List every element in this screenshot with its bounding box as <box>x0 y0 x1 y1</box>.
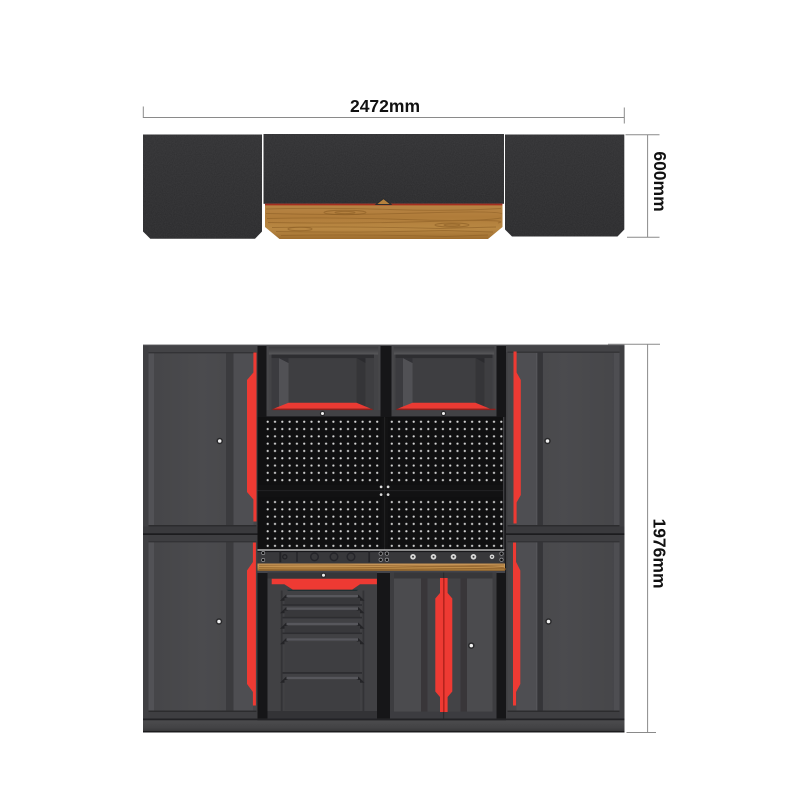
svg-text:1976mm: 1976mm <box>650 518 670 588</box>
svg-text:600mm: 600mm <box>650 151 670 211</box>
svg-text:2472mm: 2472mm <box>350 96 420 116</box>
